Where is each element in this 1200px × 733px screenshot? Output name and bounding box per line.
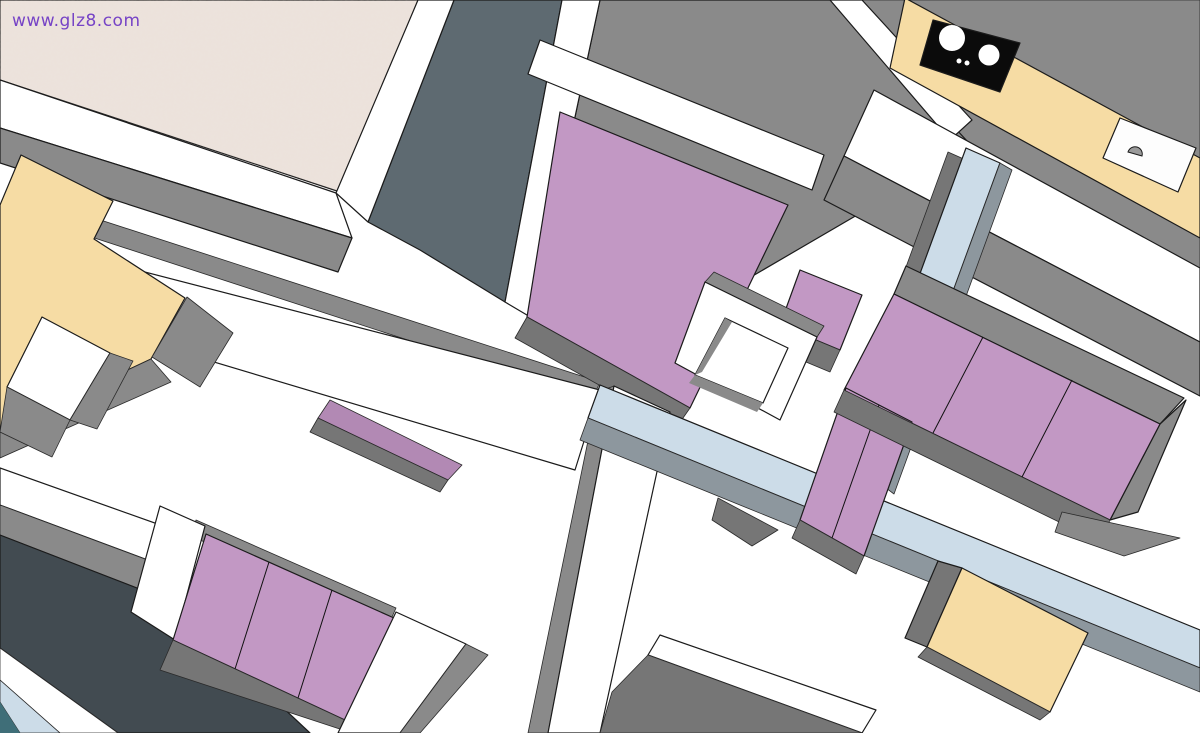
render-viewport: www.glz8.com <box>0 0 1200 733</box>
knob-1 <box>957 59 962 64</box>
watermark-text: www.glz8.com <box>12 11 141 31</box>
knob-2 <box>965 61 970 66</box>
burner-small <box>979 45 1000 66</box>
burner-large <box>939 25 965 51</box>
floorplan-render: www.glz8.com <box>0 0 1200 733</box>
